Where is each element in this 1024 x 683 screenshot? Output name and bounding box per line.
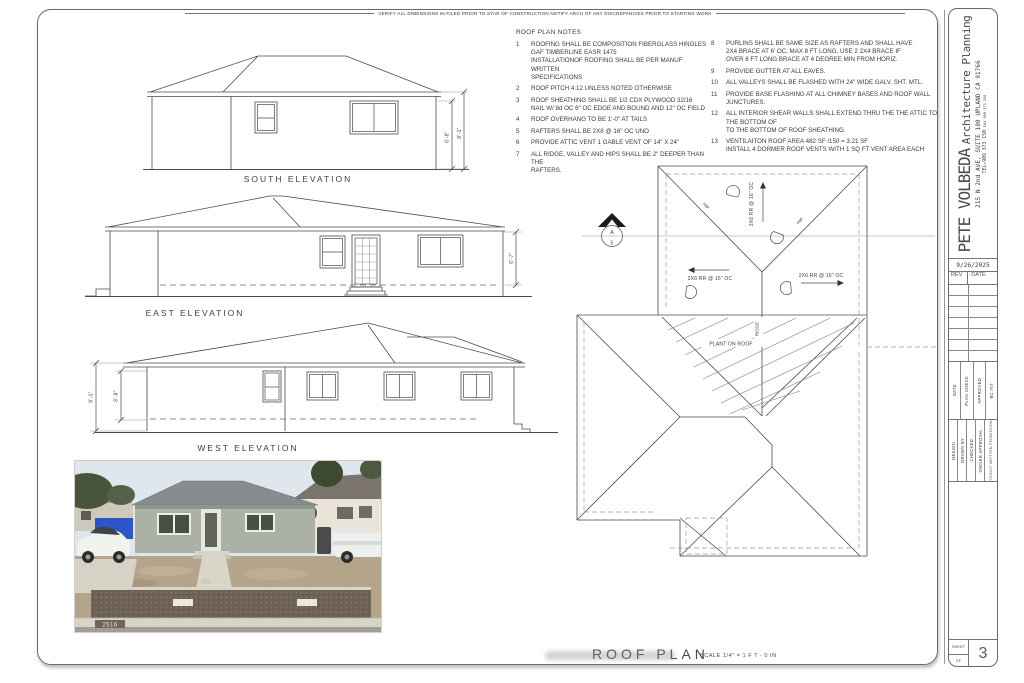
west-elevation-label: WEST ELEVATION [197, 443, 298, 453]
note-item: 1ROOFING SHALL BE COMPOSITION FIBERGLASS… [516, 41, 708, 81]
firm-info-section: PETE VOLBEDA Architecture Planning 215 N… [949, 9, 997, 259]
note-item: 10ALL VALLEYS SHALL BE FLASHED WITH 24" … [711, 79, 940, 87]
note-number: 12 [711, 110, 721, 134]
note-text: ROOF PITCH 4:12 UNLESS NOTED OTHERWISE [531, 85, 708, 93]
revision-row [949, 329, 997, 340]
sign-label: OWNER APPROVAL [978, 429, 983, 472]
note-item: 11PROVIDE BASE FLASHING AT ALL CHIMNEY B… [711, 91, 940, 107]
note-item: 4ROOF OVERHANG TO BE 1'-0" AT TAILS [516, 116, 708, 124]
revision-row [949, 318, 997, 329]
check-column: BC INT [985, 362, 997, 419]
note-number: 10 [711, 79, 721, 87]
revision-row [949, 285, 997, 296]
note-number: 4 [516, 116, 526, 124]
sign-column: DRAWN BY [957, 420, 966, 481]
check-label: BC INT [989, 383, 994, 399]
firm-fax: FAX 909 373 150 [983, 95, 987, 127]
note-item: 5RAFTERS SHALL BE 2X8 @ 16" OC UNO [516, 128, 708, 136]
note-text: ALL INTERIOR SHEAR WALLS SHALL EXTEND TH… [726, 110, 940, 134]
note-number: 13 [711, 138, 721, 154]
note-text: ALL VALLEYS SHALL BE FLASHED WITH 24" WI… [726, 79, 940, 87]
section-letter: A [610, 230, 614, 236]
roof-plan-drawing: A 5 HIP HIP 2X6 RR @ 16" OC [577, 166, 936, 556]
rafter-annotations: 2X6 RR @ 16" OC 2X6 RR @ 16" OC 2X6 RR @… [688, 182, 844, 286]
firm-name: PETE VOLBEDA [955, 149, 974, 253]
note-text: PURLINS SHALL BE SAME SIZE AS RAFTERS AN… [726, 40, 940, 64]
revision-row [949, 296, 997, 307]
sign-label: DRAWN BY [960, 438, 965, 463]
photo-trash-bin [317, 527, 331, 554]
firm-tagline: Architecture Planning [960, 16, 973, 145]
section-marker: A 5 [598, 213, 626, 247]
check-column: APPROVED [973, 362, 985, 419]
roof-plan-notes-left: ROOF PLAN NOTES 1ROOFING SHALL BE COMPOS… [516, 29, 708, 179]
note-number: 5 [516, 128, 526, 136]
project-section: ADDITON FOR BANERJEE 2516 W 164 TH STREE… [949, 482, 997, 640]
firm-address: 215 N 2nd AVE, SUITE 100 UPLAND CA 91766 [976, 60, 982, 208]
issue-date: 9/26/2025 [956, 262, 990, 269]
note-number: 1 [516, 41, 526, 81]
rafter-note-vertical: 2X6 RR @ 16" OC [749, 182, 755, 227]
note-text: PROVIDE BASE FLASHING AT ALL CHIMNEY BAS… [726, 91, 940, 107]
plant-on-roof-label: PLANT ON ROOF [709, 342, 752, 348]
note-number: 2 [516, 85, 526, 93]
check-section: DATE PLAN CHECK APPROVED BC INT [949, 362, 997, 420]
south-elevation-label: SOUTH ELEVATION [244, 174, 353, 184]
plant-on-roof-hatch: RIDGE PLANT ON ROOF [662, 317, 865, 416]
hip-label: HIP [702, 202, 711, 211]
watermark [545, 651, 675, 660]
sign-column: CHECKED [966, 420, 975, 481]
note-text: RAFTERS SHALL BE 2X8 @ 16" OC UNO [531, 128, 708, 136]
east-elevation-drawing: 6'-7" EAST ELEVATION [85, 196, 532, 318]
sign-label: CHECKED [969, 439, 974, 462]
drawing-sheet: VERIFY ALL DIMENSIONS IN FILED PRIOR TO … [0, 0, 1024, 683]
note-number: 3 [516, 97, 526, 113]
note-text: ROOF OVERHANG TO BE 1'-0" AT TAILS [531, 116, 708, 124]
notes-title: ROOF PLAN NOTES [516, 29, 708, 37]
note-number: 8 [711, 40, 721, 64]
note-text: PROVIDE ATTIC VENT 1 GABLE VENT OF 14" X… [531, 139, 708, 147]
photo-curb-address: 2516 [95, 620, 125, 629]
note-number: 7 [516, 151, 526, 175]
south-dim-outer: 8'-1" [457, 127, 463, 138]
copyright-column: DRAWINGS SHALL NOT BE REPRODUCED WITHOUT… [984, 420, 997, 481]
hip-label: HIP [796, 217, 805, 226]
note-text: ROOF SHEATHING SHALL BE 1/2 CDX PLYWOOD … [531, 97, 708, 113]
note-number: 9 [711, 68, 721, 76]
check-label: DATE [952, 384, 957, 396]
revision-table [949, 285, 997, 362]
title-block: PETE VOLBEDA Architecture Planning 215 N… [948, 8, 998, 667]
firm-phone: TEL—909 373 150 [983, 130, 988, 173]
revision-row [949, 307, 997, 318]
sign-column: OWNER APPROVAL [975, 420, 984, 481]
sheet-label: SHEET [949, 640, 968, 655]
curb-number: 2516 [102, 623, 118, 629]
west-dim-inner: 6'-8" [114, 390, 120, 401]
east-elevation-label: EAST ELEVATION [146, 308, 245, 318]
note-item: 9PROVIDE GUTTER AT ALL EAVES. [711, 68, 940, 76]
rafter-note-right: 2X6 RR @ 16" OC [799, 273, 844, 279]
revision-header: REV DATE [949, 272, 997, 285]
note-item: 2ROOF PITCH 4:12 UNLESS NOTED OTHERWISE [516, 85, 708, 93]
roof-plan-scale: SCALE 1/4" = 1 F T - 0 IN [700, 653, 777, 659]
sheet-number: 3 [969, 640, 997, 667]
note-number: 11 [711, 91, 721, 107]
of-label: OF [949, 655, 968, 668]
check-label: APPROVED [977, 378, 982, 404]
check-column: DATE [949, 362, 960, 419]
check-column: PLAN CHECK [960, 362, 972, 419]
east-dim: 6'-7" [509, 252, 515, 263]
rev-header: REV [949, 272, 968, 284]
sign-section: DESIGN DRAWN BY CHECKED OWNER APPROVAL D… [949, 420, 997, 482]
section-number: 5 [611, 241, 614, 247]
sign-label: DESIGN [951, 442, 956, 460]
note-text: ROOFING SHALL BE COMPOSITION FIBERGLASS … [531, 41, 708, 81]
sign-column: DESIGN [949, 420, 957, 481]
south-elevation-drawing: 6'-8" 8'-1" SOUTH ELEVATION [143, 56, 469, 184]
revision-table-divider [968, 285, 969, 361]
rafter-note-left: 2X6 RR @ 16" OC [688, 276, 733, 282]
note-item: 12ALL INTERIOR SHEAR WALLS SHALL EXTEND … [711, 110, 940, 134]
south-dim-inner: 6'-8" [445, 131, 451, 142]
note-text: PROVIDE GUTTER AT ALL EAVES. [726, 68, 940, 76]
note-item: 13VENTILAITON ROOF AREA 482 SF /150 = 3.… [711, 138, 940, 154]
copyright-note: DRAWINGS SHALL NOT BE REPRODUCED WITHOUT… [989, 420, 993, 481]
roof-plan-notes-right: 8PURLINS SHALL BE SAME SIZE AS RAFTERS A… [711, 40, 940, 158]
revision-row [949, 351, 997, 362]
note-item: 6PROVIDE ATTIC VENT 1 GABLE VENT OF 14" … [516, 139, 708, 147]
note-item: 7ALL RIDGE, VALLEY AND HIPS SHALL BE 2" … [516, 151, 708, 175]
issue-date-cell: 9/26/2025 [949, 259, 997, 272]
note-item: 8PURLINS SHALL BE SAME SIZE AS RAFTERS A… [711, 40, 940, 64]
date-header: DATE [968, 272, 997, 284]
note-item: 3ROOF SHEATHING SHALL BE 1/2 CDX PLYWOOD… [516, 97, 708, 113]
photo-gravel-strip [89, 587, 371, 618]
revision-row [949, 340, 997, 351]
check-label: PLAN CHECK [964, 376, 969, 406]
west-dim-outer: 8'-1" [89, 391, 95, 402]
note-text: ALL RIDGE, VALLEY AND HIPS SHALL BE 2" D… [531, 151, 708, 175]
ridge-label: RIDGE [755, 322, 760, 336]
west-elevation-drawing: 8'-1" 6'-8" WEST ELEVATION [89, 323, 559, 453]
note-number: 6 [516, 139, 526, 147]
site-photo: 2516 [75, 461, 381, 632]
note-text: VENTILAITON ROOF AREA 482 SF /150 = 3.21… [726, 138, 940, 154]
sheet-number-section: SHEET OF 3 [949, 640, 997, 667]
